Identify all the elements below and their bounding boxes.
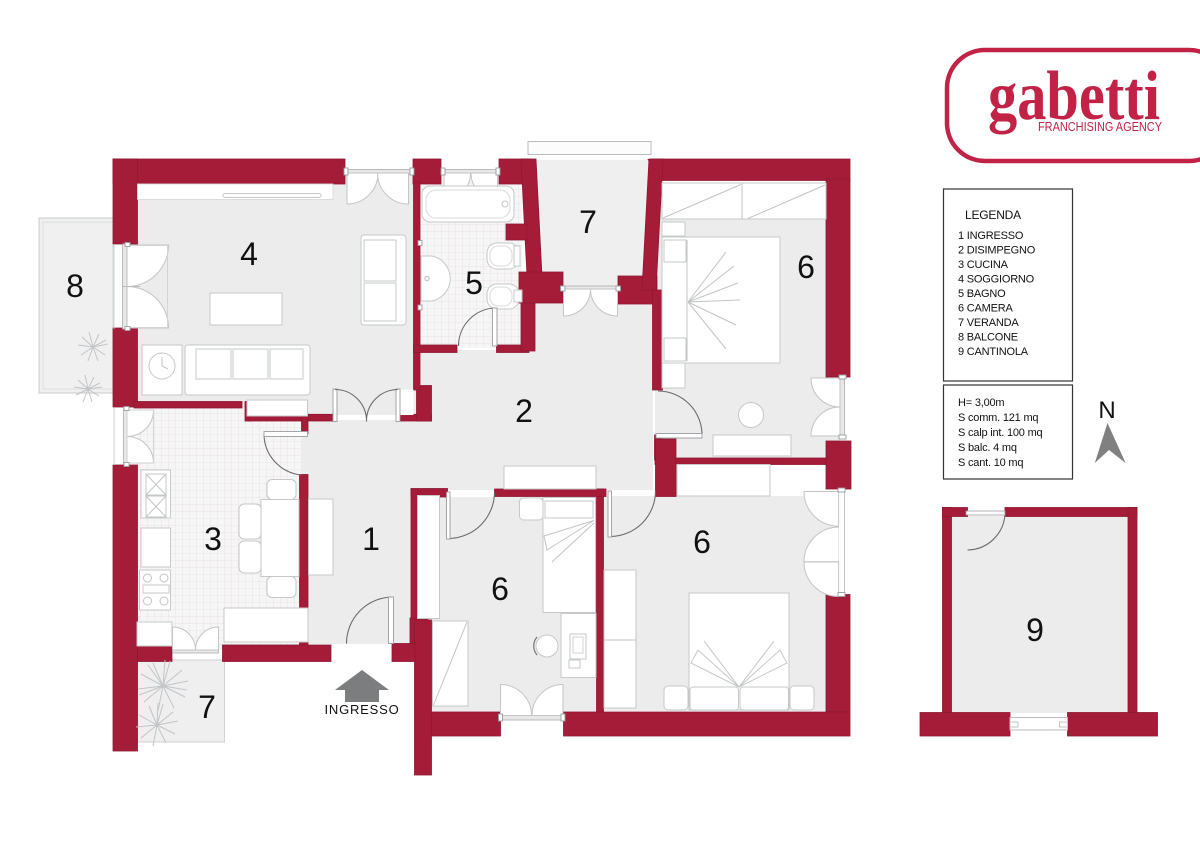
- svg-text:6: 6: [693, 524, 711, 560]
- svg-text:8 BALCONE: 8 BALCONE: [958, 332, 1018, 344]
- svg-text:3: 3: [204, 521, 222, 557]
- svg-text:2 DISIMPEGNO: 2 DISIMPEGNO: [958, 245, 1036, 257]
- svg-text:4 SOGGIORNO: 4 SOGGIORNO: [958, 274, 1035, 286]
- svg-text:FRANCHISING AGENCY: FRANCHISING AGENCY: [1038, 119, 1162, 134]
- svg-text:N: N: [1098, 397, 1115, 424]
- svg-text:6: 6: [491, 571, 509, 607]
- svg-text:7: 7: [579, 204, 597, 240]
- svg-text:S cant. 10 mq: S cant. 10 mq: [958, 457, 1023, 469]
- svg-text:5 BAGNO: 5 BAGNO: [958, 288, 1006, 300]
- svg-text:S calp int. 100 mq: S calp int. 100 mq: [958, 427, 1043, 439]
- svg-text:INGRESSO: INGRESSO: [324, 702, 399, 717]
- svg-text:6 CAMERA: 6 CAMERA: [958, 303, 1013, 315]
- svg-text:7: 7: [198, 689, 216, 725]
- svg-text:4: 4: [240, 236, 258, 272]
- svg-text:8: 8: [66, 268, 84, 304]
- svg-text:S balc. 4 mq: S balc. 4 mq: [958, 442, 1017, 454]
- svg-text:9: 9: [1026, 612, 1044, 648]
- svg-text:H= 3,00m: H= 3,00m: [958, 397, 1004, 409]
- svg-text:3 CUCINA: 3 CUCINA: [958, 259, 1009, 271]
- svg-text:LEGENDA: LEGENDA: [965, 208, 1021, 222]
- svg-text:9 CANTINOLA: 9 CANTINOLA: [958, 346, 1029, 358]
- svg-text:1: 1: [362, 521, 380, 557]
- svg-text:1 INGRESSO: 1 INGRESSO: [958, 230, 1024, 242]
- svg-text:5: 5: [465, 265, 483, 301]
- svg-text:S comm. 121 mq: S comm. 121 mq: [958, 412, 1038, 424]
- svg-text:7 VERANDA: 7 VERANDA: [958, 317, 1019, 329]
- svg-text:2: 2: [515, 393, 533, 429]
- svg-text:6: 6: [797, 249, 815, 285]
